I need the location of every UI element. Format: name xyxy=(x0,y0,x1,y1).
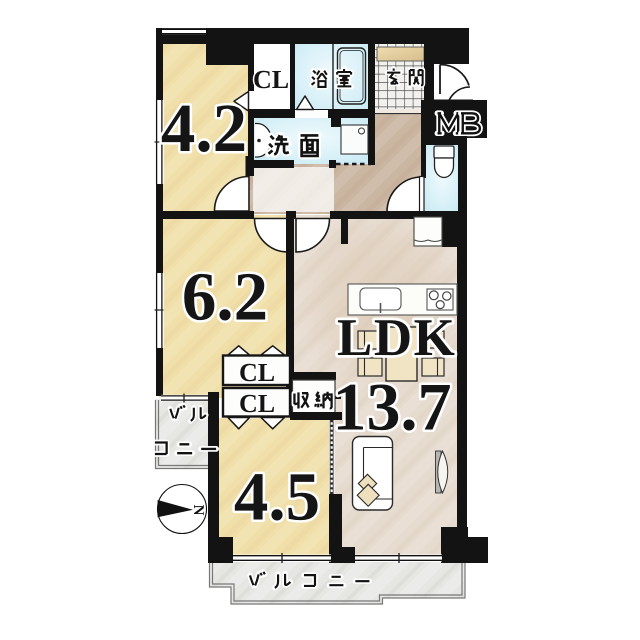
svg-text:6.2: 6.2 xyxy=(182,259,268,335)
svg-text:13.7: 13.7 xyxy=(333,369,452,445)
svg-text:CL: CL xyxy=(253,65,289,94)
svg-text:N: N xyxy=(190,505,206,516)
svg-text:CL: CL xyxy=(239,389,275,418)
svg-text:4.2: 4.2 xyxy=(161,90,247,166)
svg-text:LDK: LDK xyxy=(337,309,456,367)
svg-text:CL: CL xyxy=(239,358,275,387)
svg-text:4.5: 4.5 xyxy=(234,459,320,535)
